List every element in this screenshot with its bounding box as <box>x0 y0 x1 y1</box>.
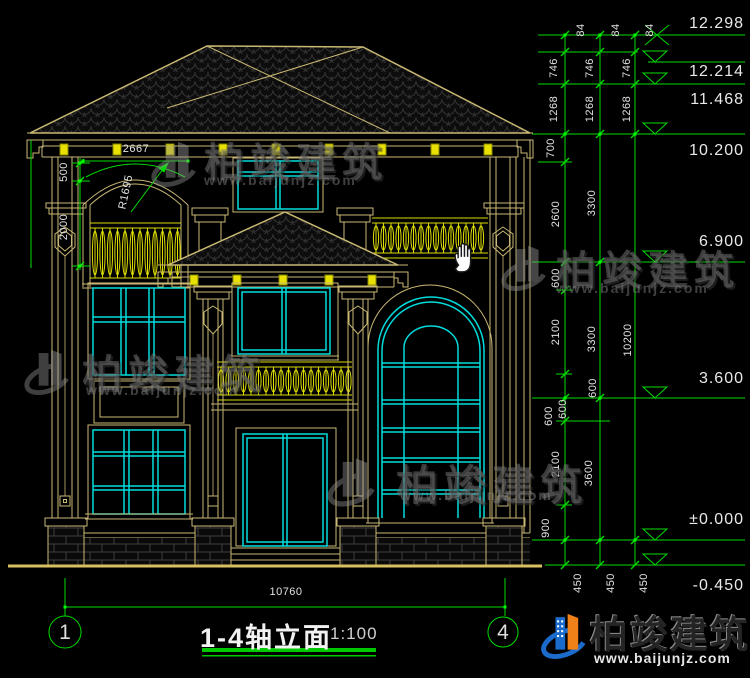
dim-label: 600 <box>557 399 569 419</box>
cad-drawing-canvas[interactable]: 8484847467467461268126812687002600330060… <box>0 0 750 678</box>
dim-label: 746 <box>584 58 596 78</box>
dim-label: 600 <box>550 268 562 288</box>
dim-label: 450 <box>572 573 584 593</box>
elevation-label: 11.468 <box>690 91 744 109</box>
dim-label: 450 <box>638 573 650 593</box>
dim-label: 3600 <box>583 460 595 486</box>
dim-label: 10760 <box>269 586 302 598</box>
right-wall-edge <box>524 140 530 533</box>
drawing-title: 1-4轴立面 <box>200 616 332 655</box>
dim-label: 2100 <box>550 319 562 345</box>
left-second-floor-window <box>88 283 190 379</box>
dim-label: 84 <box>610 23 622 36</box>
left-spandrel-panel <box>94 381 184 423</box>
elevation-label: 6.900 <box>699 233 744 251</box>
dim-label: 1268 <box>548 96 560 122</box>
left-first-floor-window <box>85 425 193 519</box>
hand-cursor-icon <box>452 242 482 276</box>
dim-label: 450 <box>605 573 617 593</box>
drawing-scale: 1:100 <box>330 624 378 644</box>
base-brick-band <box>50 532 530 566</box>
dim-label: 500 <box>58 162 70 182</box>
elevation-label: -0.450 <box>693 577 744 595</box>
axis-bubble-4: 4 <box>497 621 509 645</box>
dim-label: 1268 <box>621 96 633 122</box>
elevation-label: 12.298 <box>689 15 744 33</box>
brand-url: www.baijunjz.com <box>594 650 731 666</box>
title-underline-thin <box>202 655 376 657</box>
third-floor-window <box>233 158 323 212</box>
pilaster-porch-left <box>192 286 234 566</box>
dim-label: 1268 <box>584 96 596 122</box>
axis-bubble-1: 1 <box>59 621 71 645</box>
dim-label: 3300 <box>586 190 598 216</box>
brand-logo-icon <box>540 600 592 670</box>
elevation-label: 3.600 <box>699 370 744 388</box>
dim-label: 2000 <box>58 214 70 240</box>
dim-label: 600 <box>543 406 555 426</box>
dim-label: 600 <box>587 378 599 398</box>
dim-label: 2667 <box>123 143 149 155</box>
elevation-label: 12.214 <box>689 63 744 81</box>
pilaster-porch-right <box>337 286 379 566</box>
dim-label: 700 <box>545 138 557 158</box>
dim-label: 746 <box>548 58 560 78</box>
dim-label: 2600 <box>550 201 562 227</box>
main-roof <box>27 46 533 158</box>
dim-label: 84 <box>644 23 656 36</box>
tall-arched-window <box>366 285 494 523</box>
dim-label: 3300 <box>586 326 598 352</box>
elevation-label: ±0.000 <box>689 511 744 529</box>
elevation-label: 10.200 <box>689 142 744 160</box>
dim-label: 10200 <box>622 323 634 356</box>
dim-label: 84 <box>575 23 587 36</box>
center-second-floor-window <box>231 283 339 360</box>
dim-label: 2100 <box>550 451 562 477</box>
pilaster-outer-right <box>483 157 525 566</box>
dim-label: 900 <box>540 518 552 538</box>
dim-label: 746 <box>621 58 633 78</box>
